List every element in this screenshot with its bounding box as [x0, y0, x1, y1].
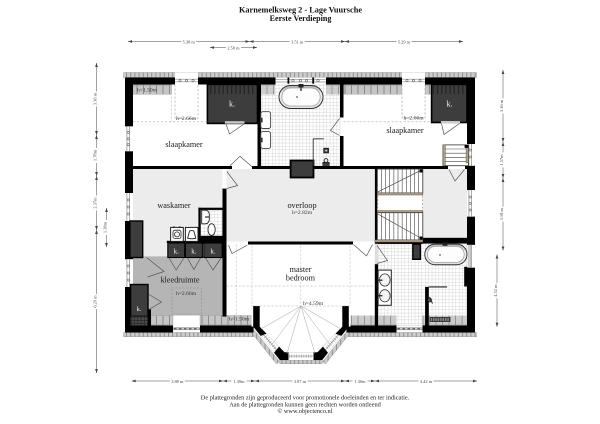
- svg-text:k.: k.: [229, 100, 235, 109]
- svg-text:slaapkamer: slaapkamer: [165, 140, 203, 149]
- svg-text:kleedruimte: kleedruimte: [160, 276, 199, 285]
- svg-text:1.38m: 1.38m: [103, 221, 108, 233]
- svg-text:3.51 m: 3.51 m: [291, 39, 304, 44]
- svg-text:6.20 m: 6.20 m: [93, 295, 98, 308]
- svg-text:3.16 m: 3.16 m: [499, 99, 504, 112]
- svg-text:4.52 m: 4.52 m: [493, 284, 498, 297]
- svg-text:k.: k.: [210, 248, 216, 256]
- svg-text:© www.objectenco.nl: © www.objectenco.nl: [278, 408, 333, 415]
- svg-text:1.30m: 1.30m: [354, 379, 366, 384]
- svg-text:1.57m: 1.57m: [499, 154, 504, 166]
- svg-text:waskamer: waskamer: [157, 201, 190, 210]
- svg-text:h<1.50m: h<1.50m: [137, 88, 158, 94]
- svg-text:h=2.82m: h=2.82m: [292, 210, 313, 216]
- svg-text:1.78m: 1.78m: [93, 149, 98, 161]
- svg-text:overloop: overloop: [287, 201, 316, 210]
- svg-text:h=2.66m: h=2.66m: [176, 116, 197, 122]
- svg-text:k.: k.: [191, 248, 197, 256]
- svg-text:5.29 m: 5.29 m: [398, 39, 411, 44]
- svg-text:k.: k.: [137, 306, 142, 313]
- svg-text:h=2.66m: h=2.66m: [403, 116, 424, 122]
- svg-text:h=2.66m: h=2.66m: [176, 291, 197, 297]
- svg-text:h=4.59m: h=4.59m: [303, 301, 324, 307]
- svg-text:k.: k.: [174, 248, 180, 256]
- svg-text:3.16 m: 3.16 m: [93, 92, 98, 105]
- svg-text:3.87 m: 3.87 m: [294, 379, 307, 384]
- svg-text:5.38 m: 5.38 m: [183, 39, 196, 44]
- svg-text:slaapkamer: slaapkamer: [386, 126, 424, 135]
- svg-text:1.39m: 1.39m: [233, 379, 245, 384]
- svg-text:h<1.50m: h<1.50m: [229, 317, 250, 323]
- svg-text:2.50 m: 2.50 m: [227, 45, 240, 50]
- svg-text:Eerste Verdieping: Eerste Verdieping: [270, 14, 332, 23]
- svg-text:k.: k.: [447, 100, 453, 109]
- svg-text:bedroom: bedroom: [286, 274, 316, 283]
- svg-text:2.37m: 2.37m: [93, 197, 98, 209]
- svg-text:4.42 m: 4.42 m: [420, 379, 433, 384]
- svg-text:3.18 m: 3.18 m: [499, 208, 504, 221]
- svg-text:3.88 m: 3.88 m: [171, 379, 184, 384]
